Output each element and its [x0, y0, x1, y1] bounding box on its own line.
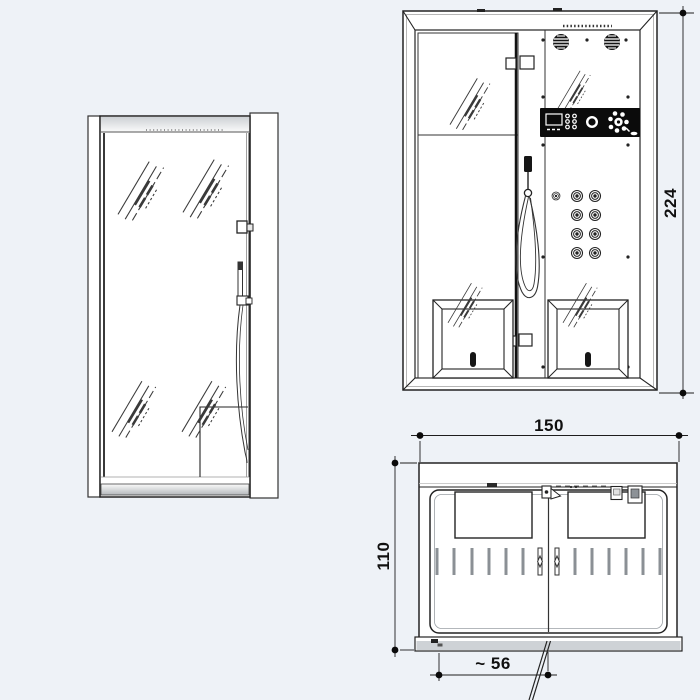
- dim-width-label: 150: [534, 416, 564, 435]
- dimension-width: 150: [411, 416, 688, 462]
- plan-view: [415, 463, 682, 700]
- dim-door-clearance-label: ~ 56: [475, 654, 511, 673]
- panel-logo: [631, 132, 638, 135]
- side-shower-tray: [101, 484, 249, 495]
- side-front-pillar: [250, 113, 278, 498]
- dimension-door-clearance: ~ 56: [430, 652, 557, 681]
- speaker-icon: [604, 34, 620, 50]
- dimension-depth: 110: [374, 456, 417, 657]
- control-panel: [540, 108, 640, 137]
- speaker-icon: [553, 34, 569, 50]
- drawing-canvas: 224 150 110 ~ 56: [0, 0, 700, 700]
- door-hinge-top: [506, 56, 534, 69]
- side-glass-door-panel: [100, 116, 250, 497]
- shower-cabin-drawing: 224 150 110 ~ 56: [0, 0, 700, 700]
- side-wall-profile: [88, 116, 100, 497]
- dim-height-label: 224: [661, 188, 680, 218]
- plan-seat-left: [455, 492, 532, 538]
- dimension-height: 224: [659, 6, 694, 399]
- front-view: [403, 8, 657, 390]
- dim-depth-label: 110: [374, 542, 393, 571]
- side-elevation-view: [88, 113, 278, 498]
